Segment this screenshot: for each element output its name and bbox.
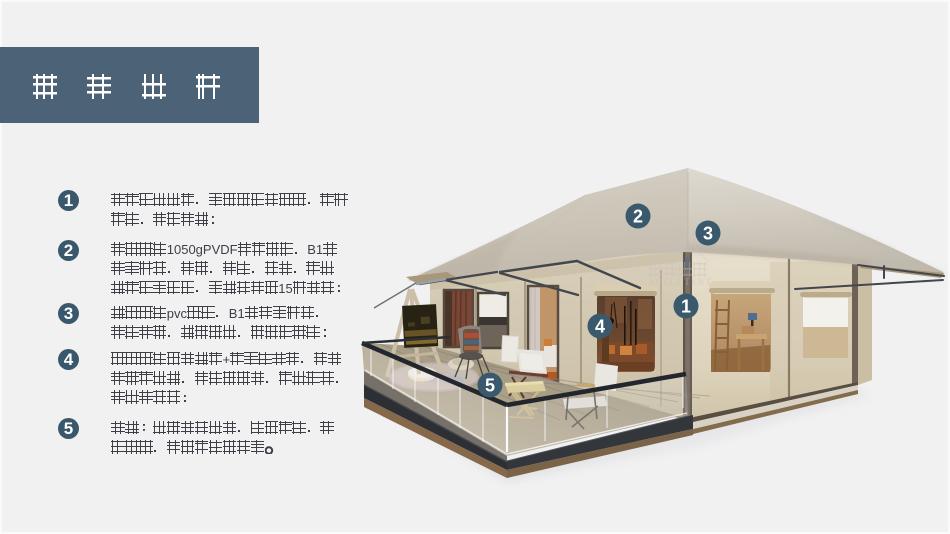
svg-text:4: 4 — [595, 317, 605, 337]
svg-text:3: 3 — [703, 224, 713, 244]
svg-text:5: 5 — [485, 376, 495, 396]
svg-text:2: 2 — [633, 207, 643, 227]
svg-text:1: 1 — [681, 297, 691, 317]
